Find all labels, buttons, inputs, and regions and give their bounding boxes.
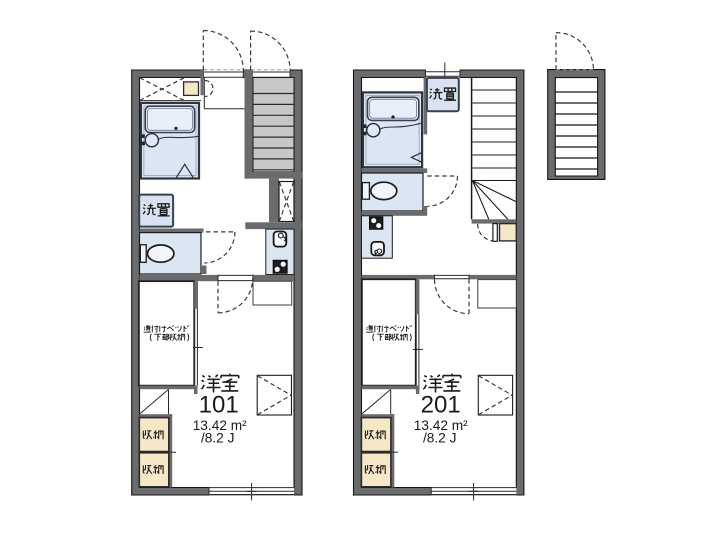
svg-text:201: 201 xyxy=(421,392,461,419)
svg-text:/8.2 J: /8.2 J xyxy=(423,430,456,445)
svg-text:101: 101 xyxy=(199,392,239,419)
svg-text:/8.2 J: /8.2 J xyxy=(201,430,234,445)
